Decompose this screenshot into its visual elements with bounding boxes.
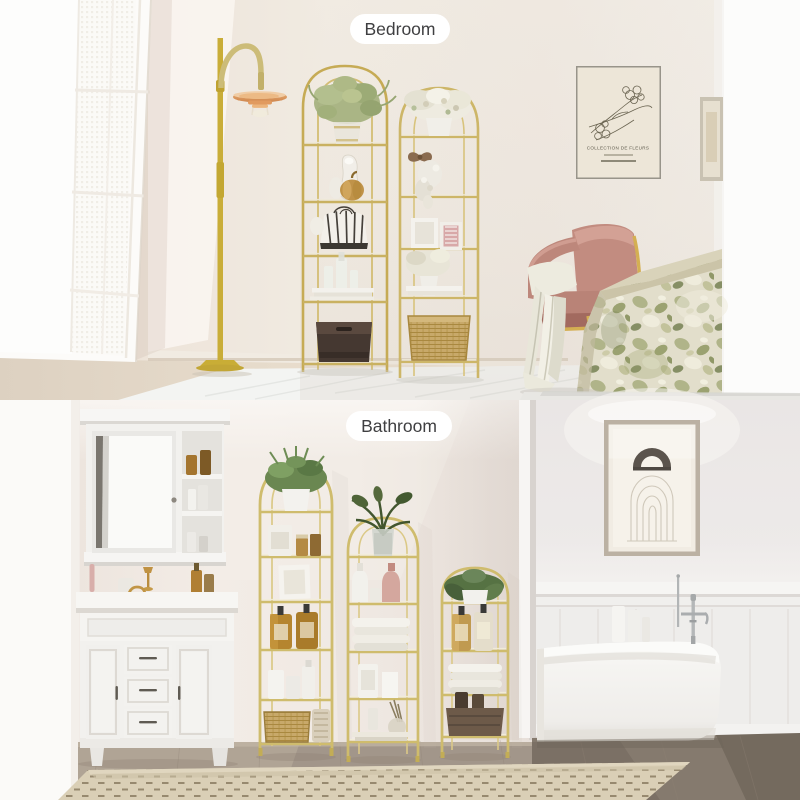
svg-text:Bathroom: Bathroom: [361, 416, 437, 436]
svg-text:Bedroom: Bedroom: [364, 19, 435, 39]
svg-text:COLLECTION DE FLEURS: COLLECTION DE FLEURS: [587, 146, 649, 151]
